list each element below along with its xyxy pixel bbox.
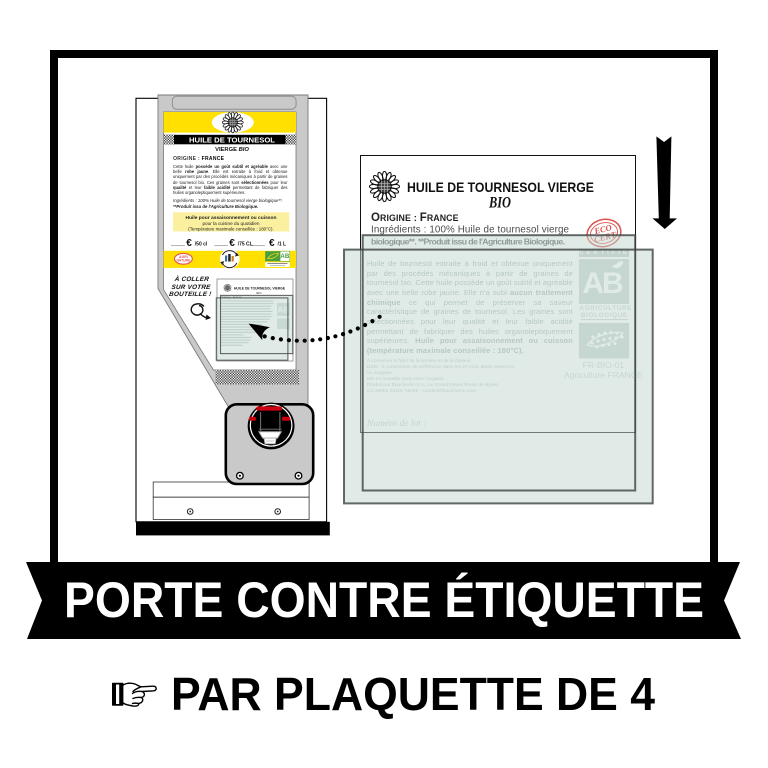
svg-text:/1 L: /1 L bbox=[278, 241, 287, 247]
svg-text:HUILE DE TOURNESOL: HUILE DE TOURNESOL bbox=[189, 136, 275, 145]
svg-text:VIERGE BIO: VIERGE BIO bbox=[215, 147, 249, 153]
svg-text:PORTE CONTRE ÉTIQUETTE: PORTE CONTRE ÉTIQUETTE bbox=[64, 572, 704, 628]
svg-text:AB: AB bbox=[280, 253, 289, 260]
svg-text:€: € bbox=[186, 238, 192, 249]
svg-text:(Température maximale conseill: (Température maximale conseillée : 180°C… bbox=[188, 227, 273, 232]
svg-text:BIO: BIO bbox=[256, 291, 262, 295]
svg-text:pour la cuisine du quotidien: pour la cuisine du quotidien bbox=[202, 221, 259, 226]
svg-text:ORIGINE : FRANCE: ORIGINE : FRANCE bbox=[173, 156, 225, 162]
svg-text:NATURE: NATURE bbox=[176, 259, 191, 263]
svg-text:PAR PLAQUETTE DE 4: PAR PLAQUETTE DE 4 bbox=[171, 668, 655, 720]
svg-text:€: € bbox=[269, 238, 275, 249]
svg-text:HUILE DE TOURNESOL VIERGE: HUILE DE TOURNESOL VIERGE bbox=[234, 286, 286, 290]
svg-text:/50 cl: /50 cl bbox=[195, 241, 208, 247]
svg-text:/75 CL: /75 CL bbox=[238, 241, 253, 247]
svg-text:€: € bbox=[229, 238, 235, 249]
